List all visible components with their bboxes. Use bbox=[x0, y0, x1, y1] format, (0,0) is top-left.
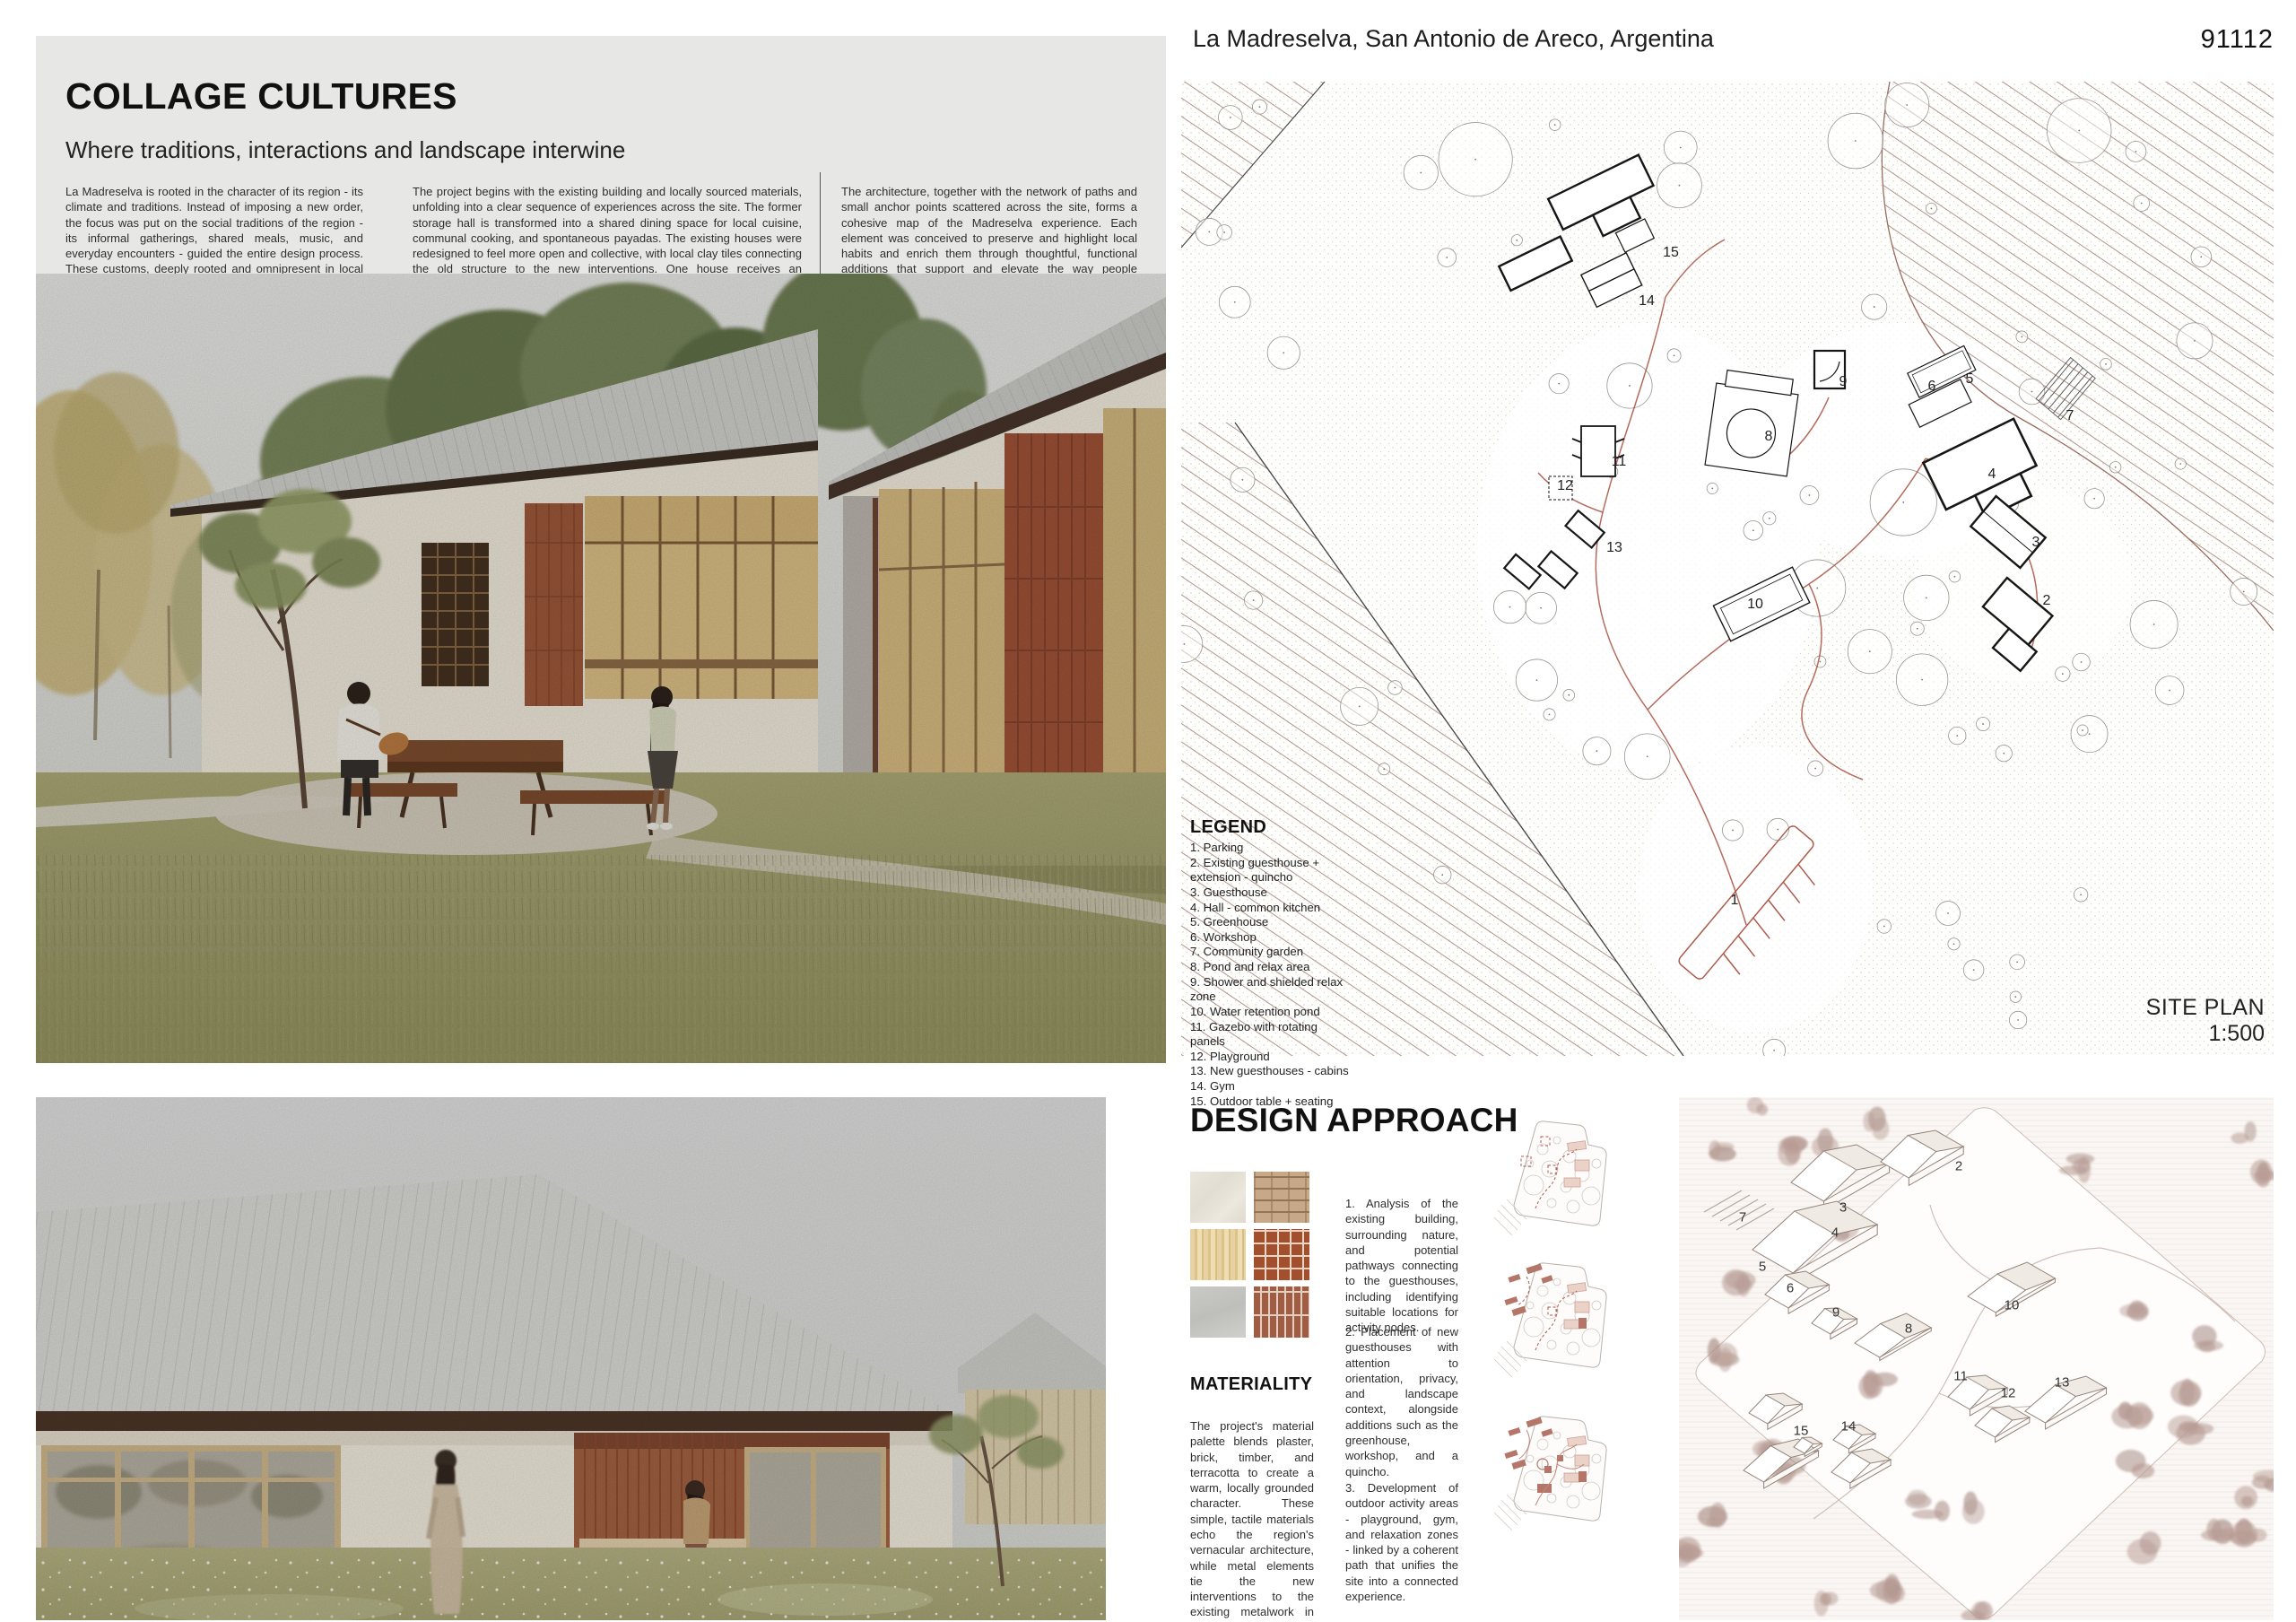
plan-marker: 8 bbox=[1905, 1321, 1912, 1337]
diagram-step-2 bbox=[1491, 1251, 1636, 1384]
axonometric-view: 23456789101112131415 bbox=[1679, 1097, 2274, 1620]
render-photo-courtyard bbox=[36, 274, 1166, 1063]
legend-item: 8. Pond and relax area bbox=[1190, 960, 1352, 975]
plan-marker: 10 bbox=[2005, 1298, 2020, 1313]
location-header: La Madreselva, San Antonio de Areco, Arg… bbox=[1193, 25, 1714, 53]
plan-marker: 10 bbox=[1747, 597, 1763, 613]
design-step-3: 3. Development of outdoor activity areas… bbox=[1345, 1480, 1458, 1604]
plan-marker: 9 bbox=[1839, 374, 1848, 390]
plan-marker: 6 bbox=[1787, 1281, 1794, 1296]
plan-marker: 15 bbox=[1663, 245, 1679, 261]
intro-panel: COLLAGE CULTURES Where traditions, inter… bbox=[36, 36, 1166, 1063]
plan-marker: 7 bbox=[2066, 408, 2074, 424]
legend-item: 12. Playground bbox=[1190, 1050, 1352, 1065]
plan-marker: 8 bbox=[1765, 429, 1773, 445]
diagram-step-3 bbox=[1491, 1405, 1636, 1538]
plan-marker: 2 bbox=[1955, 1159, 1962, 1174]
plan-marker: 4 bbox=[1831, 1225, 1839, 1241]
board-number: 91112 bbox=[2201, 25, 2274, 55]
swatch-terracotta-tiles-texture bbox=[1254, 1229, 1309, 1280]
plan-marker: 11 bbox=[1953, 1369, 1968, 1384]
legend-item: 14. Gym bbox=[1190, 1079, 1352, 1094]
material-swatches bbox=[1190, 1172, 1310, 1338]
materiality-title: MATERIALITY bbox=[1190, 1374, 1312, 1395]
plan-marker: 5 bbox=[1759, 1260, 1766, 1275]
page-subtitle: Where traditions, interactions and lands… bbox=[65, 136, 625, 164]
design-step-2: 2. Placement of new guesthouses with att… bbox=[1345, 1324, 1458, 1479]
plan-marker: 14 bbox=[1639, 293, 1655, 310]
plan-marker: 15 bbox=[1794, 1424, 1809, 1439]
legend-item: 10. Water retention pond bbox=[1190, 1005, 1352, 1020]
plan-marker: 14 bbox=[1841, 1419, 1857, 1435]
legend-item: 2. Existing guesthouse + extension - qui… bbox=[1190, 856, 1352, 885]
swatch-metal-texture bbox=[1190, 1286, 1246, 1338]
plan-marker: 3 bbox=[2032, 535, 2040, 551]
site-plan-legend: LEGEND 1. Parking2. Existing guesthouse … bbox=[1190, 817, 1414, 1109]
legend-item: 1. Parking bbox=[1190, 841, 1352, 856]
legend-item: 6. Workshop bbox=[1190, 930, 1352, 946]
plan-marker: 4 bbox=[1988, 467, 1996, 483]
plan-marker: 2 bbox=[2043, 593, 2051, 609]
design-approach-title: DESIGN APPROACH bbox=[1190, 1102, 1518, 1139]
plan-marker: 12 bbox=[2001, 1386, 2016, 1401]
plan-marker: 3 bbox=[1839, 1200, 1847, 1216]
plan-marker: 11 bbox=[1612, 454, 1627, 470]
plan-marker: 9 bbox=[1832, 1305, 1839, 1321]
caption-title: SITE PLAN bbox=[2146, 995, 2265, 1021]
legend-item: 11. Gazebo with rotating panels bbox=[1190, 1020, 1352, 1050]
presentation-board: COLLAGE CULTURES Where traditions, inter… bbox=[0, 0, 2296, 1622]
plan-marker: 6 bbox=[1928, 379, 1936, 395]
legend-item: 13. New guesthouses - cabins bbox=[1190, 1064, 1352, 1079]
site-plan: 123456789101112131415 LEGEND 1. Parking2… bbox=[1181, 82, 2274, 1056]
swatch-earth-brick-texture bbox=[1254, 1172, 1309, 1223]
page-title: COLLAGE CULTURES bbox=[65, 75, 457, 118]
swatch-brick-lattice-texture bbox=[1254, 1286, 1309, 1338]
plan-marker: 12 bbox=[1557, 478, 1573, 494]
legend-item: 9. Shower and shielded relax zone bbox=[1190, 975, 1352, 1005]
column-divider bbox=[820, 172, 821, 278]
plan-marker: 13 bbox=[1606, 540, 1622, 556]
swatch-timber-texture bbox=[1190, 1229, 1246, 1280]
plan-marker: 5 bbox=[1966, 371, 1974, 388]
legend-item: 7. Community garden bbox=[1190, 945, 1352, 960]
design-step-1: 1. Analysis of the existing building, su… bbox=[1345, 1196, 1458, 1336]
caption-scale: 1:500 bbox=[2146, 1021, 2265, 1047]
plan-marker: 1 bbox=[1731, 893, 1739, 909]
swatch-plaster-texture bbox=[1190, 1172, 1246, 1223]
legend-item: 4. Hall - common kitchen bbox=[1190, 901, 1352, 916]
legend-item: 5. Greenhouse bbox=[1190, 915, 1352, 930]
materiality-text: The project's material palette blends pl… bbox=[1190, 1418, 1314, 1622]
render-photo-guesthouse bbox=[36, 1097, 1106, 1620]
diagram-step-1 bbox=[1491, 1110, 1636, 1243]
legend-title: LEGEND bbox=[1190, 817, 1414, 838]
axon-markers: 23456789101112131415 bbox=[1679, 1097, 2274, 1620]
site-plan-caption: SITE PLAN 1:500 bbox=[2146, 995, 2265, 1047]
legend-item: 3. Guesthouse bbox=[1190, 885, 1352, 901]
plan-marker: 13 bbox=[2055, 1375, 2070, 1391]
plan-marker: 7 bbox=[1739, 1210, 1746, 1225]
